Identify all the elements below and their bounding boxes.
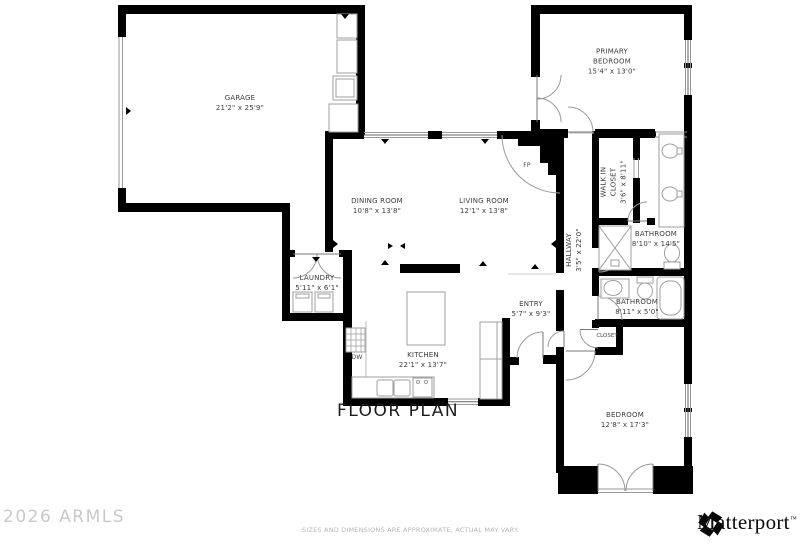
- mls-watermark: 2026 ARMLS: [3, 507, 125, 527]
- room-label-bedroom: BEDROOM 12'8" x 17'3": [601, 411, 649, 431]
- room-label-dining-room: DINING ROOM 10'8" x 13'8": [351, 197, 403, 217]
- disclaimer-text: SIZES AND DIMENSIONS ARE APPROXIMATE, AC…: [302, 526, 519, 534]
- room-label-kitchen: KITCHEN 22'1" x 13'7": [399, 351, 447, 371]
- room-label-hallway: HALLWAY 3'5" x 22'0": [565, 228, 585, 272]
- room-label-garage: GARAGE 21'2" x 25'9": [216, 94, 264, 114]
- dishwasher-label: DW: [352, 354, 363, 362]
- fireplace-label: FP: [523, 162, 530, 170]
- room-label-laundry: LAUNDRY 5'11" x 6'1": [295, 274, 339, 294]
- room-label-primary-bathroom: BATHROOM 8'10" x 14'5": [632, 230, 680, 250]
- matterport-pinwheel-icon: [697, 510, 725, 538]
- room-label-entry: ENTRY 5'7" x 9'3": [512, 300, 551, 320]
- trademark-symbol: ™: [790, 515, 797, 523]
- page-title: FLOOR PLAN: [337, 401, 459, 421]
- room-label-closet: CLOSET: [596, 333, 617, 341]
- floor-plan-drawing: [0, 0, 800, 544]
- room-label-primary-bedroom: PRIMARY BEDROOM 15'4" x 13'0": [588, 47, 636, 76]
- room-label-bathroom: BATHROOM 8'11" x 5'0": [615, 298, 659, 318]
- floor-plan-canvas: GARAGE 21'2" x 25'9" PRIMARY BEDROOM 15'…: [0, 0, 800, 544]
- matterport-logo: Matterport™: [697, 510, 797, 535]
- room-label-living-room: LIVING ROOM 12'1" x 13'8": [459, 197, 509, 217]
- room-label-walk-in-closet: WALK IN CLOSET 3'6" x 8'11": [599, 160, 628, 204]
